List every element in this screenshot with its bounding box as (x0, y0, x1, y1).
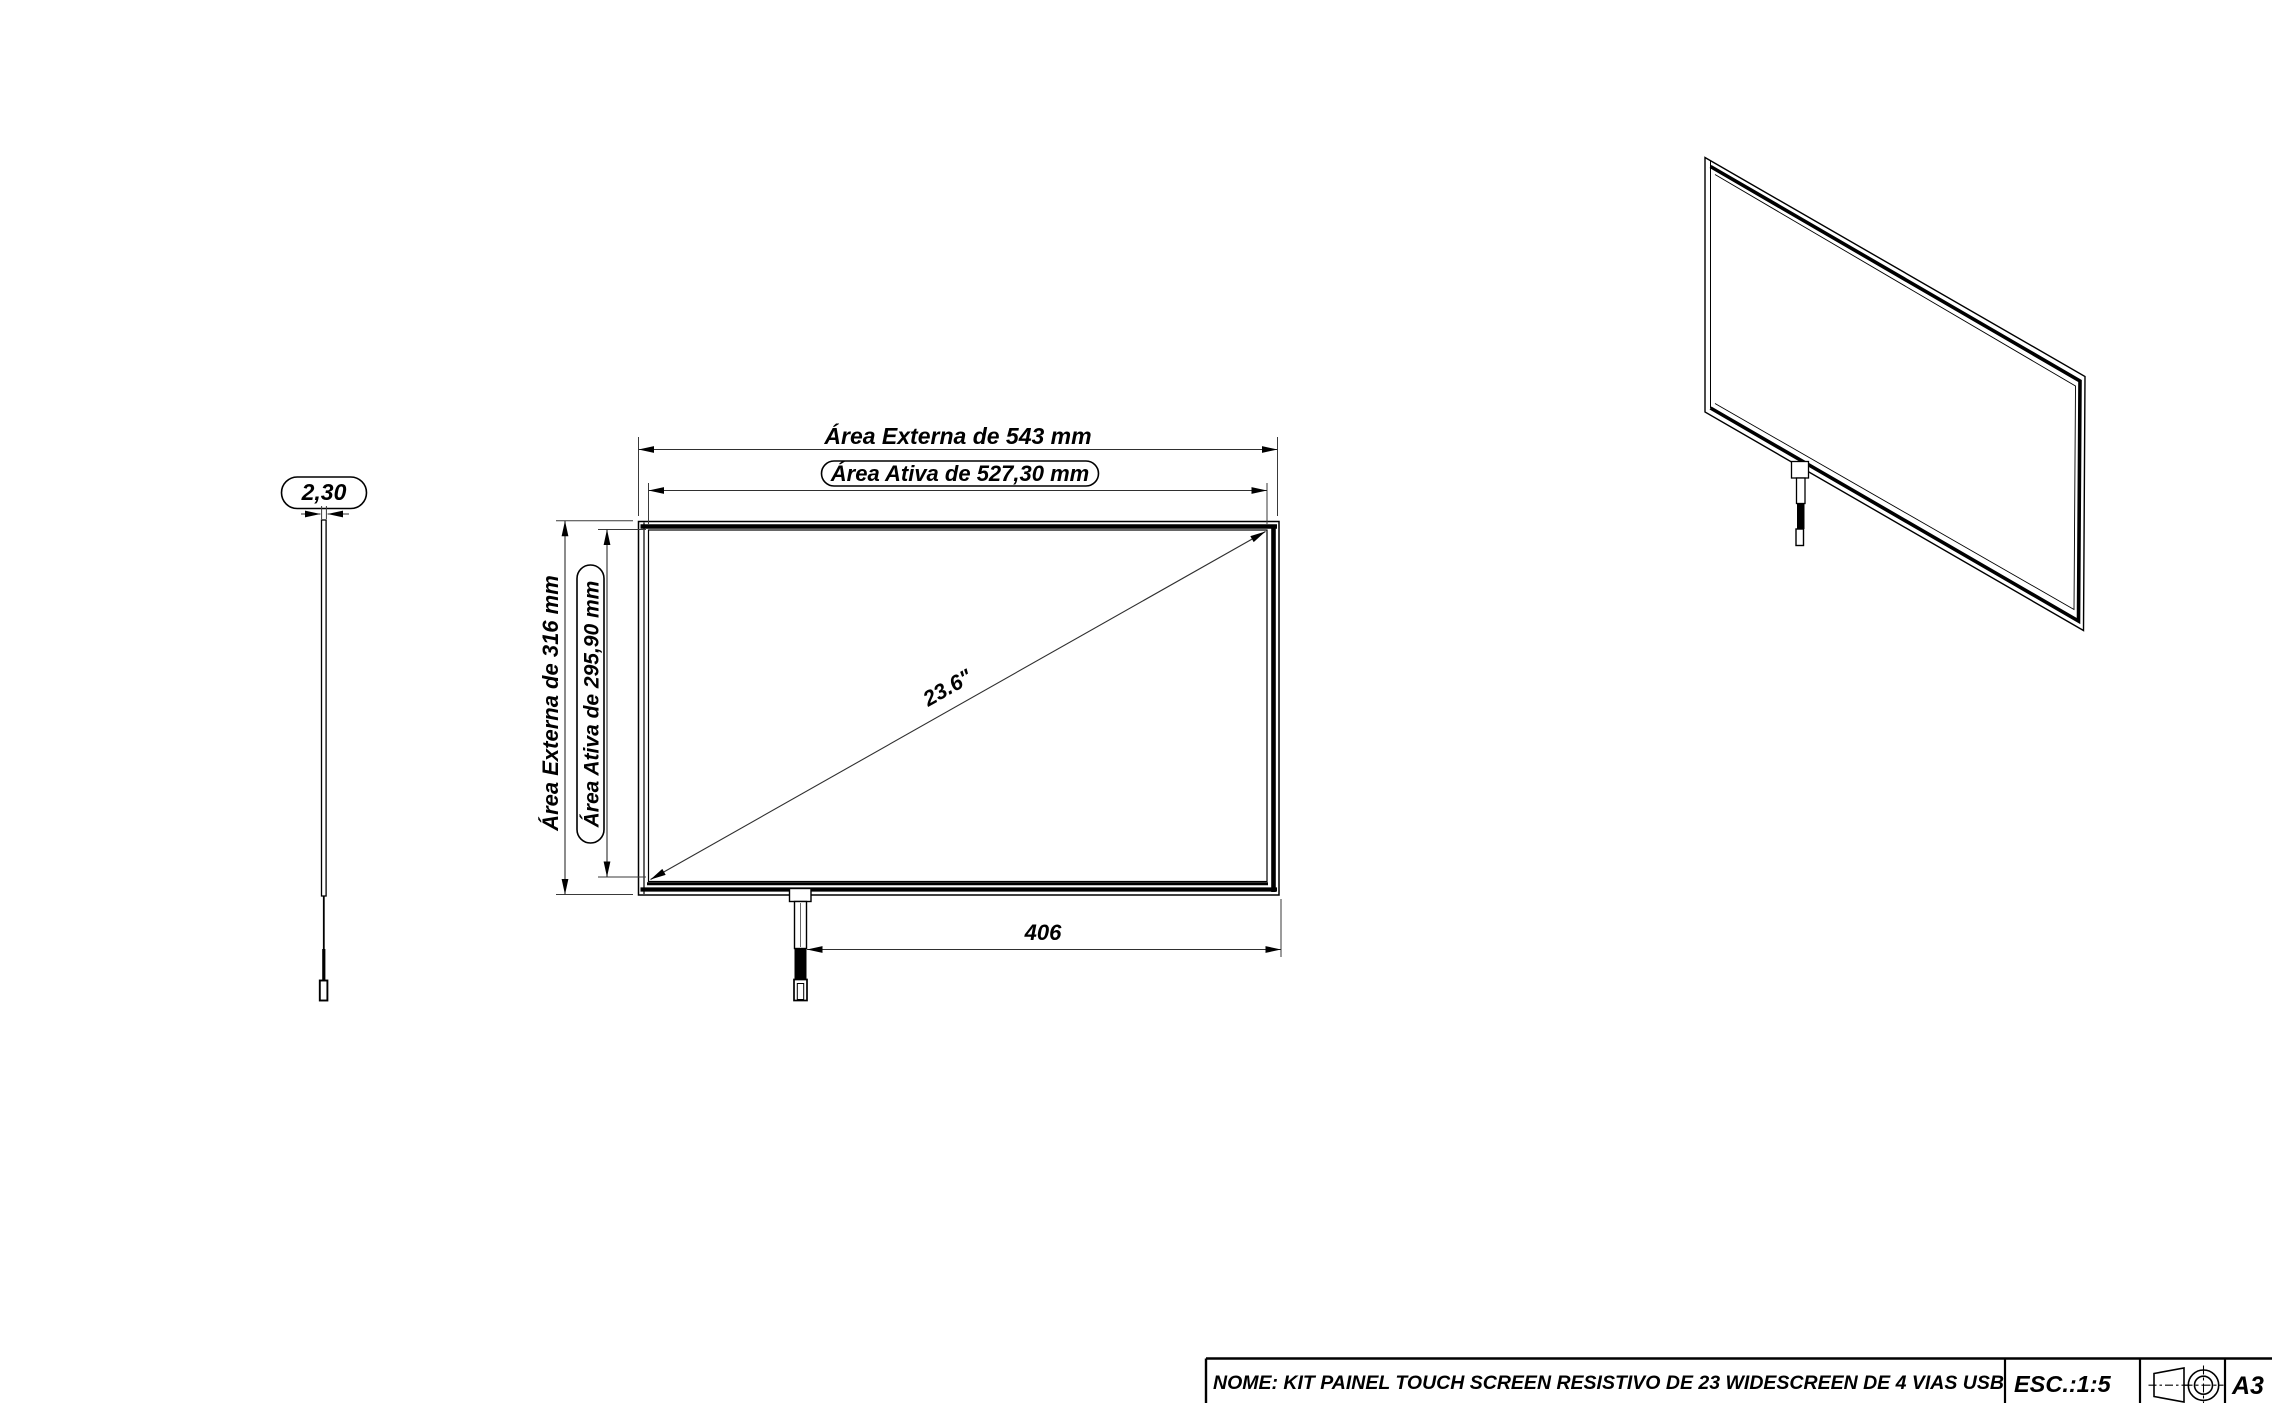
cable-connector-profile (320, 981, 328, 1001)
side-view: 2,30 (282, 477, 367, 1001)
cable-tail-front (790, 889, 812, 1001)
iso-cable-connector (1796, 529, 1804, 546)
first-angle-projection-icon (2149, 1366, 2224, 1403)
front-view: 23.6" Área Externa de 543 mm Área Ativa … (538, 422, 1281, 1001)
outer-width-dimension-label: Área Externa de 543 mm (823, 422, 1091, 449)
drawing-sheet: 2,30 23.6" Área Externa de 543 mm (0, 0, 2272, 1403)
panel-edge-profile (322, 520, 327, 896)
cable-flange (790, 889, 812, 902)
thickness-dimension-label: 2,30 (301, 479, 347, 505)
sheet-size-label: A3 (2231, 1372, 2264, 1400)
cable-tail-iso (1792, 462, 1809, 546)
active-height-dimension-label: Área Ativa de 295,90 mm (581, 581, 604, 829)
active-width-dimension-label: Área Ativa de 527,30 mm (830, 461, 1089, 486)
iso-cable-sleeve (1797, 504, 1805, 530)
title-block: NOME: KIT PAINEL TOUCH SCREEN RESISTIVO … (1206, 1359, 2272, 1403)
iso-cable-flange (1792, 462, 1809, 479)
isometric-view (1705, 158, 2085, 631)
iso-panel-outline (1705, 158, 2085, 631)
drawing-scale-label: ESC.:1:5 (2014, 1371, 2112, 1397)
iso-cable-shaft (1797, 478, 1806, 504)
drawing-name-label: NOME: KIT PAINEL TOUCH SCREEN RESISTIVO … (1213, 1372, 2004, 1394)
cable-offset-dimension-label: 406 (1024, 920, 1062, 945)
cable-sleeve (795, 949, 807, 980)
technical-drawing-canvas: 2,30 23.6" Área Externa de 543 mm (0, 0, 2272, 1403)
outer-height-dimension-label: Área Externa de 316 mm (538, 575, 563, 832)
